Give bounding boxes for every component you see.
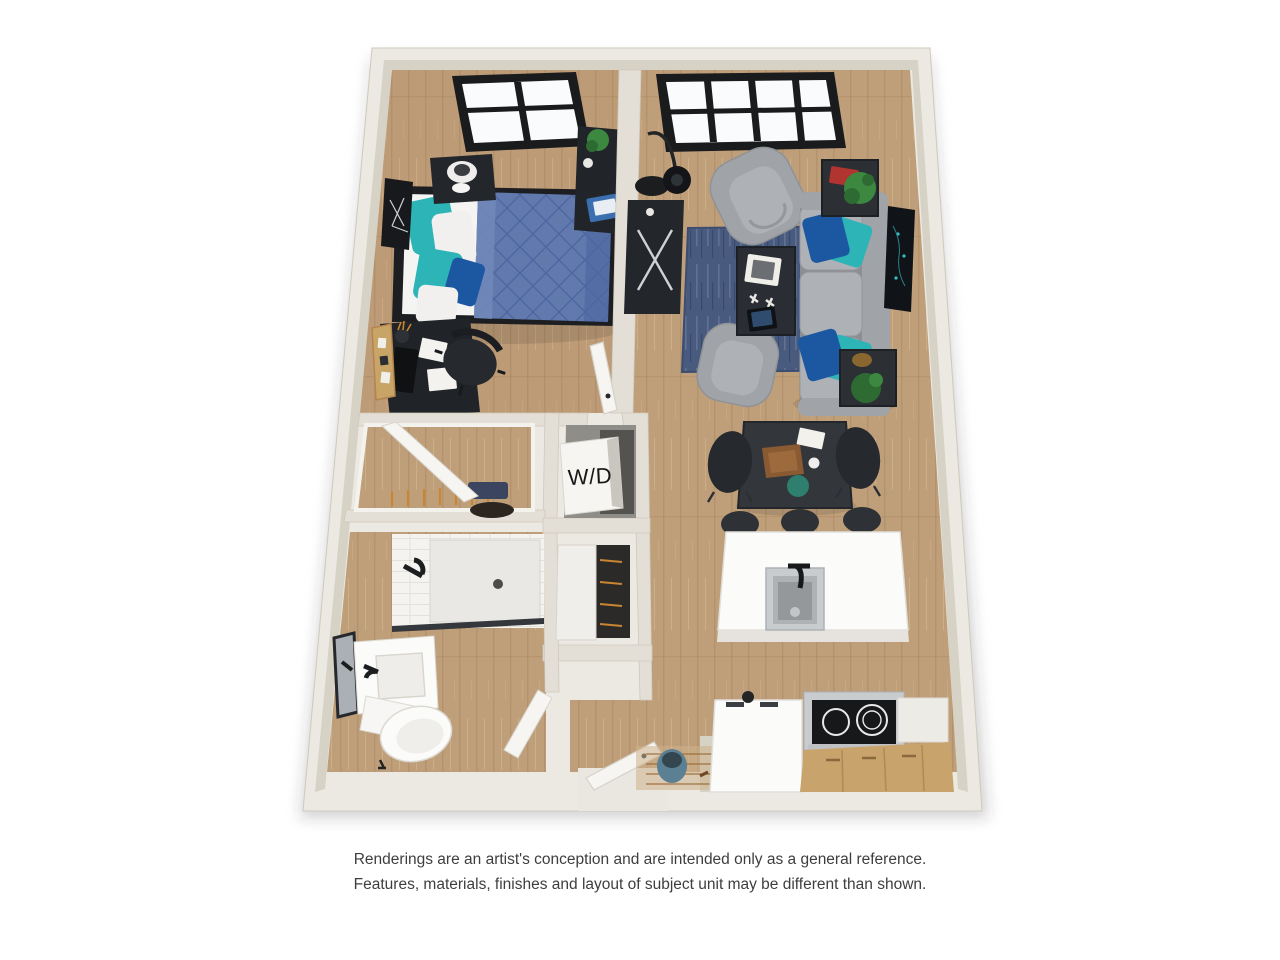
floorplan-page: W/D [0,0,1280,960]
wall-coat-bottom [543,645,652,661]
disclaimer-line1: Renderings are an artist's conception an… [0,848,1280,873]
floorplan-svg: W/D [0,0,1280,832]
sink-drain [790,607,800,617]
bedroom-door-handle [606,394,611,399]
kitchen-island [717,532,909,642]
coat-closet-door [556,545,596,640]
floorplan-render: W/D [0,0,1280,832]
coat-closet [556,545,630,640]
tv-stand [624,200,684,314]
robot-vacuum-top [662,752,682,768]
cooktop [812,700,896,744]
nightstand [430,154,496,204]
shelf-mug [583,158,593,168]
tv-stand-decor-dot [646,208,654,216]
corkboard-note-2 [380,356,389,366]
counter-appliance [742,691,754,703]
wall-face-top [384,60,918,70]
dining-tray-inner [768,450,798,473]
stove [804,692,904,751]
disclaimer-line2: Features, materials, finishes and layout… [0,873,1280,898]
bedroom-wall-art [381,178,413,250]
pinecone [852,353,872,367]
side-table-plant-leaf [844,188,860,204]
vanity-sink [376,653,425,699]
sofa-cushion-2 [800,272,862,336]
coffee-table [737,247,795,335]
side-table-plant-leaf-2 [862,174,874,186]
side-table-bottom [840,350,896,406]
art-speck-2 [902,254,905,257]
disclaimer: Renderings are an artist's conception an… [0,848,1280,897]
table-lamp-base [452,183,470,193]
closet-bag [470,502,514,518]
corkboard-note-1 [378,338,387,349]
refrigerator [710,691,802,792]
art-speck-3 [894,276,897,279]
floor-lamp-bulb [671,174,683,186]
kitchen-cabinets [800,742,954,792]
bar-stool-3 [843,507,881,533]
fridge-handle-2 [760,702,778,707]
living-window [656,72,846,152]
side-table-top [822,160,878,216]
tablet-screen [751,310,773,328]
kitchen-counter-right [898,698,948,742]
shower-drain [493,579,503,589]
side-table-plant-leaf-3 [869,373,883,387]
shelf-plant-leaf [586,140,598,152]
island-front-face [717,630,909,642]
bedroom-window [452,72,590,152]
wd-label: W/D [567,463,613,490]
corkboard-note-3 [380,372,390,384]
living-wall-art [884,206,915,312]
fridge-handle-1 [726,702,744,707]
table-lamp-top [454,164,470,176]
coffee-table-book-top [751,260,775,281]
wall-closet-divider [543,413,559,522]
desk-pen-cup [395,329,409,343]
dining-cup [809,458,820,469]
green-jug [787,475,809,497]
laundry-closet: W/D [560,425,636,518]
wall-wd-bottom [543,518,650,533]
shower-pan [430,540,540,622]
corkboard [372,324,395,400]
bar-stool-2 [781,509,819,535]
